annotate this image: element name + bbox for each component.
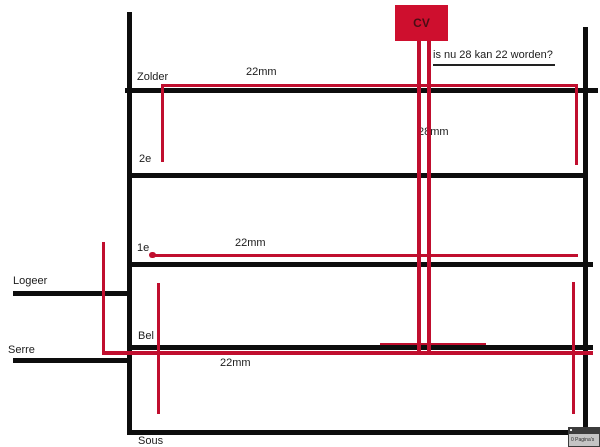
zolder-pipe-right-drop [575, 84, 578, 165]
bel-pipe-run [102, 351, 593, 355]
pages-badge-label: 0 Pagina's [569, 434, 599, 446]
pages-badge[interactable]: 0 Pagina's [568, 427, 600, 447]
left-wall-line [127, 12, 132, 435]
floor-label-bel: Bel [138, 330, 154, 342]
annex-label-logeer: Logeer [13, 275, 47, 287]
pipe-size-label-bel: 22mm [220, 357, 251, 369]
zolder-pipe-left-drop [161, 84, 164, 162]
annotation-question: is nu 28 kan 22 worden? [433, 49, 555, 66]
left-riser-pipe-bel [157, 283, 160, 414]
cv-supply-riser-pipe [417, 40, 421, 355]
pipe-size-label-zolder: 22mm [246, 66, 277, 78]
bel-pipe-upper-segment [380, 343, 486, 345]
floor-label-1e: 1e [137, 242, 149, 254]
zolder-pipe-run [161, 84, 578, 87]
pages-badge-dot [570, 429, 572, 431]
serre-connection-line [13, 358, 132, 363]
floor-label-sous: Sous [138, 435, 163, 447]
annex-label-serre: Serre [8, 344, 35, 356]
logeer-connection-line [13, 291, 132, 296]
floor-line-2e [127, 173, 588, 178]
cv-label: CV [413, 16, 430, 30]
floor-line-1e [127, 262, 593, 267]
diagram-canvas: CV Zolder 2e 1e Bel Sous Logeer Serre 22… [0, 0, 600, 447]
left-riser-pipe-serre [102, 242, 105, 355]
floor-line-bel [127, 345, 593, 350]
floor-label-2e: 2e [139, 153, 151, 165]
pipe-size-label-riser: 28mm [418, 126, 449, 138]
pipe-size-label-1e: 22mm [235, 237, 266, 249]
floor-line-sous [127, 430, 588, 435]
cv-return-riser-pipe [427, 40, 431, 355]
right-riser-pipe [572, 282, 575, 414]
first-floor-pipe-run [150, 254, 578, 257]
floor-line-zolder [125, 88, 598, 93]
cv-boiler-box: CV [395, 5, 448, 41]
floor-label-zolder: Zolder [137, 71, 168, 83]
